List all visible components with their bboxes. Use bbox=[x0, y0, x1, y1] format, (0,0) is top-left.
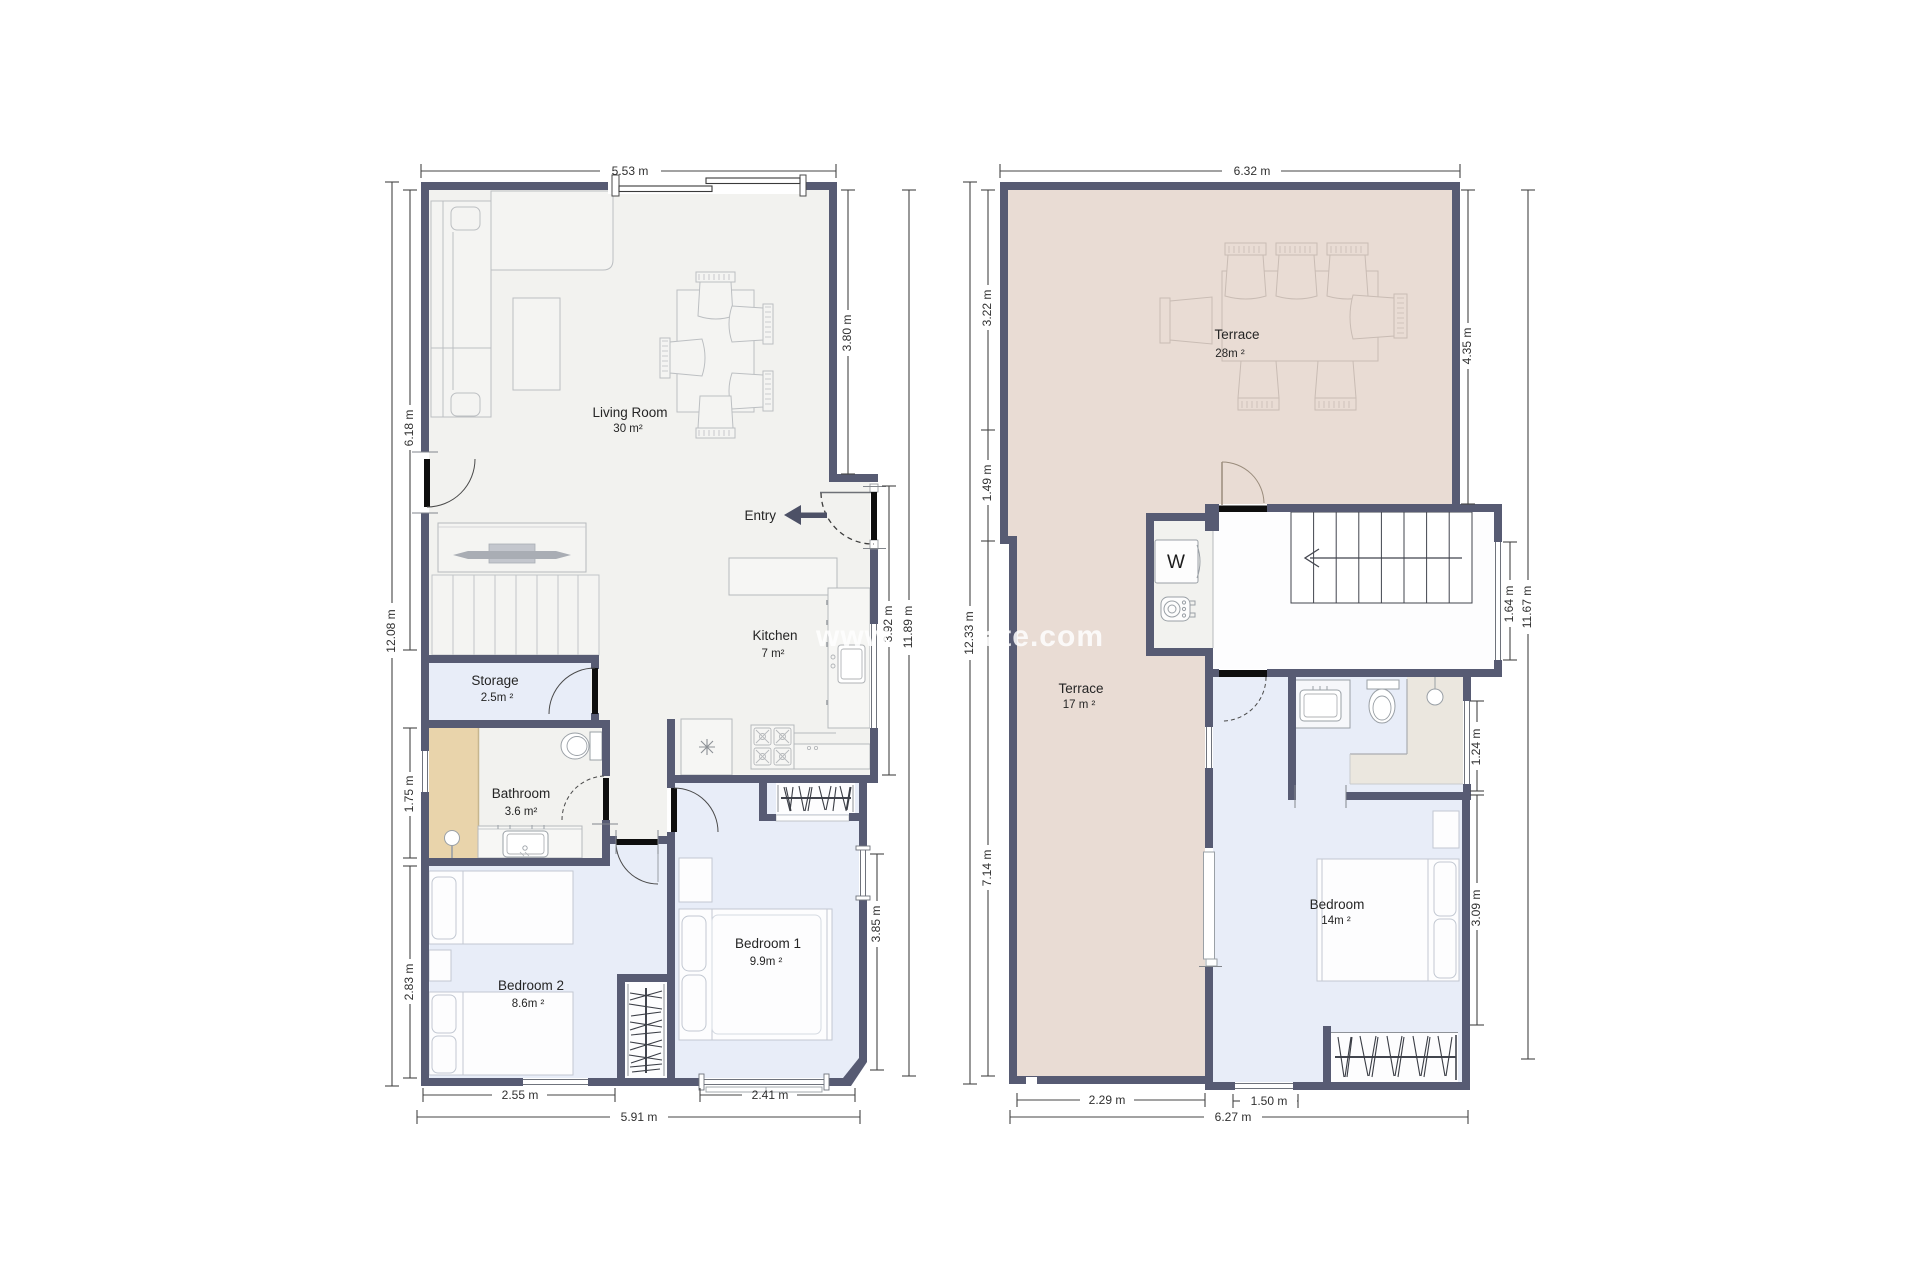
svg-text:1.64 m: 1.64 m bbox=[1502, 586, 1516, 623]
svg-text:6.27 m: 6.27 m bbox=[1215, 1110, 1252, 1124]
svg-text:4.35 m: 4.35 m bbox=[1460, 328, 1474, 365]
svg-text:6.18 m: 6.18 m bbox=[402, 410, 416, 447]
svg-text:2.29 m: 2.29 m bbox=[1089, 1093, 1126, 1107]
svg-text:Bedroom 2: Bedroom 2 bbox=[498, 978, 564, 993]
svg-text:Bedroom: Bedroom bbox=[1310, 897, 1365, 912]
svg-text:1.50 m: 1.50 m bbox=[1251, 1094, 1288, 1108]
svg-text:Terrace: Terrace bbox=[1214, 327, 1259, 342]
svg-text:1.24 m: 1.24 m bbox=[1469, 729, 1483, 766]
svg-text:1.75 m: 1.75 m bbox=[402, 776, 416, 813]
svg-text:28m ²: 28m ² bbox=[1215, 348, 1245, 360]
svg-text:Bathroom: Bathroom bbox=[492, 786, 551, 801]
svg-text:11.89 m: 11.89 m bbox=[901, 606, 915, 648]
svg-text:1.49 m: 1.49 m bbox=[980, 465, 994, 502]
svg-text:Storage: Storage bbox=[471, 673, 518, 688]
svg-text:11.67 m: 11.67 m bbox=[1520, 586, 1534, 628]
svg-text:12.08 m: 12.08 m bbox=[384, 609, 398, 652]
svg-text:W: W bbox=[1167, 552, 1185, 573]
svg-text:7 m²: 7 m² bbox=[762, 648, 785, 660]
svg-text:Entry: Entry bbox=[744, 508, 776, 523]
svg-text:5.91 m: 5.91 m bbox=[621, 1110, 658, 1124]
svg-text:3.85 m: 3.85 m bbox=[869, 906, 883, 943]
svg-text:www.: www. bbox=[815, 620, 897, 653]
svg-text:Bedroom 1: Bedroom 1 bbox=[735, 936, 801, 951]
svg-text:6.32 m: 6.32 m bbox=[1234, 164, 1271, 178]
svg-text:3.6 m²: 3.6 m² bbox=[505, 806, 538, 818]
svg-text:2.55 m: 2.55 m bbox=[502, 1088, 539, 1102]
svg-text:Living Room: Living Room bbox=[592, 405, 667, 420]
svg-text:3.22 m: 3.22 m bbox=[980, 290, 994, 327]
svg-text:30 m²: 30 m² bbox=[613, 423, 643, 435]
svg-text:12.33 m: 12.33 m bbox=[962, 611, 976, 654]
svg-text:8.6m ²: 8.6m ² bbox=[512, 998, 545, 1010]
svg-text:ate.com: ate.com bbox=[984, 620, 1104, 653]
svg-text:2.41 m: 2.41 m bbox=[752, 1088, 789, 1102]
svg-text:Kitchen: Kitchen bbox=[752, 628, 797, 643]
svg-text:2.5m ²: 2.5m ² bbox=[481, 692, 514, 704]
svg-text:5.53 m: 5.53 m bbox=[612, 164, 649, 178]
svg-text:3.80 m: 3.80 m bbox=[840, 315, 854, 352]
svg-text:3.09 m: 3.09 m bbox=[1469, 890, 1483, 927]
svg-text:2.83 m: 2.83 m bbox=[402, 964, 416, 1001]
svg-text:14m ²: 14m ² bbox=[1321, 915, 1351, 927]
svg-text:7.14 m: 7.14 m bbox=[980, 850, 994, 887]
svg-text:9.9m ²: 9.9m ² bbox=[750, 956, 783, 968]
svg-text:17 m ²: 17 m ² bbox=[1063, 699, 1096, 711]
svg-text:Terrace: Terrace bbox=[1058, 681, 1103, 696]
